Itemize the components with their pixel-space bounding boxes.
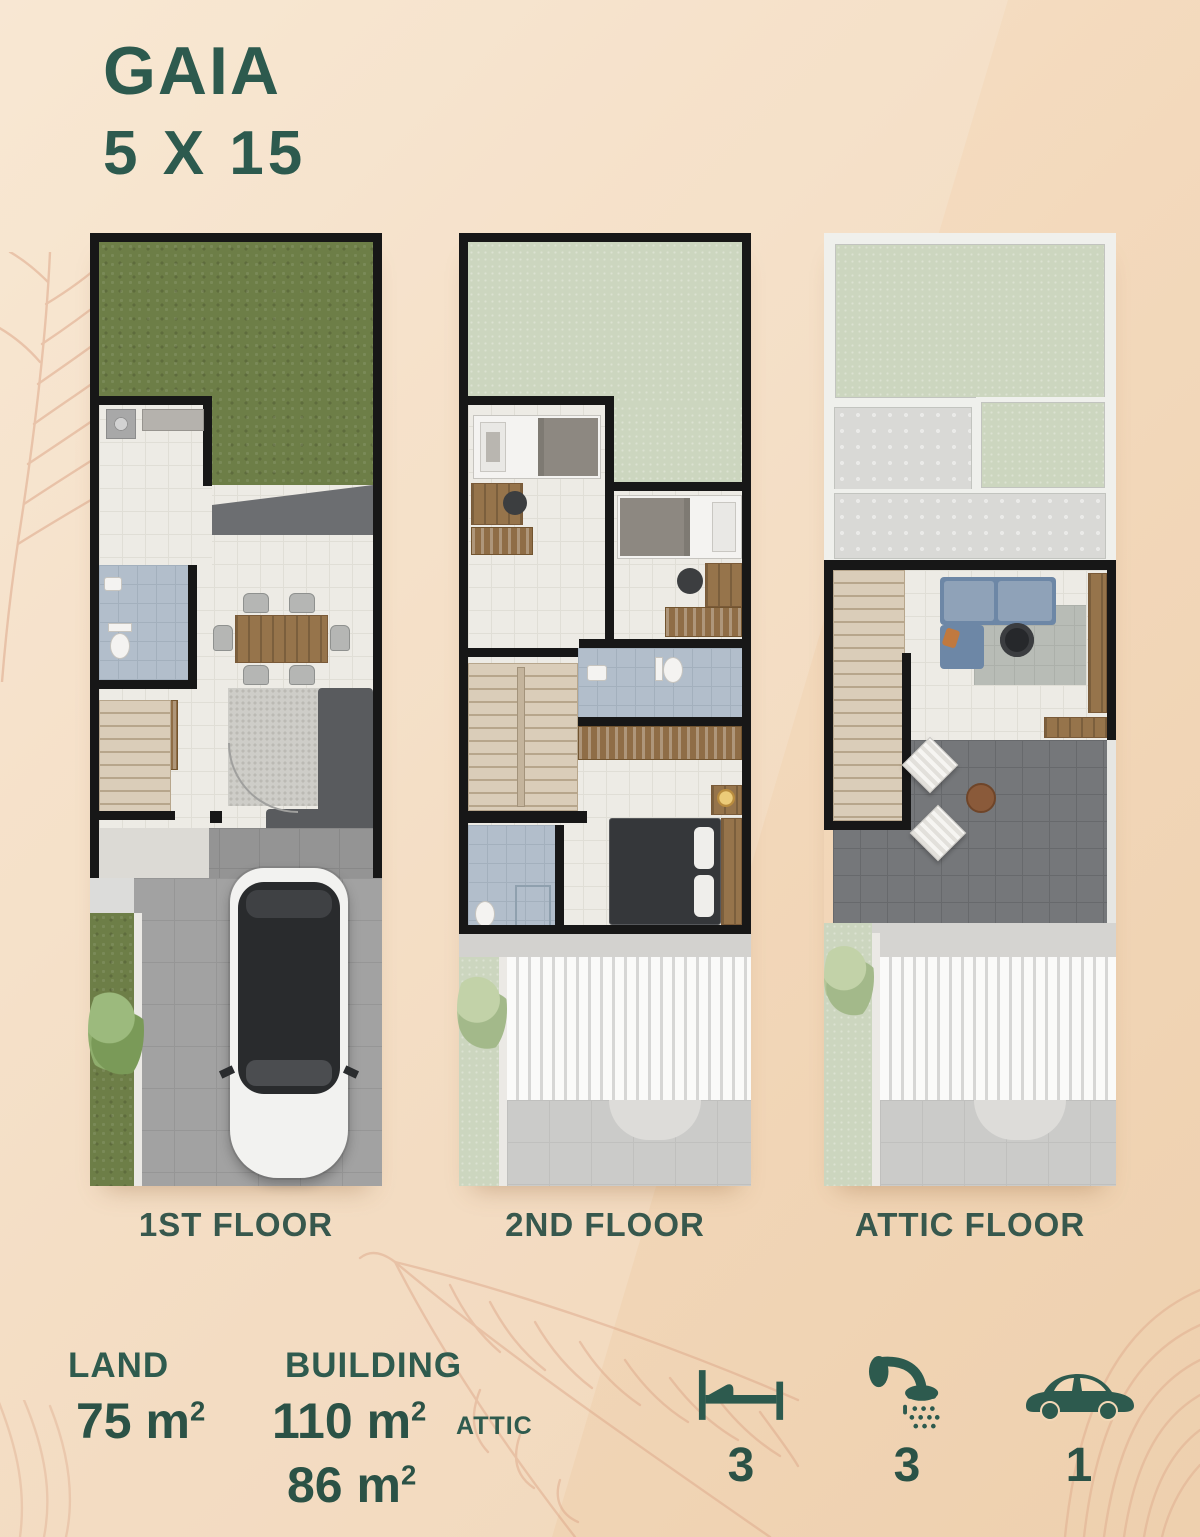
garden-bush: [824, 933, 874, 1021]
blue-sofa: [940, 577, 1056, 625]
dining-chair: [289, 593, 315, 613]
roof-deck-concrete-wide: [830, 489, 1110, 563]
carport-count: 1: [1020, 1438, 1138, 1493]
bedroom2-top-wall: [468, 396, 614, 405]
floor-label-2nd: 2ND FLOOR: [459, 1206, 751, 1244]
page-title: GAIA: [103, 32, 281, 110]
attic-value: 86 m2: [287, 1456, 416, 1514]
building-unit: m: [367, 1393, 411, 1449]
master-headboard: [721, 818, 742, 925]
land-value: 75 m2: [76, 1392, 205, 1450]
bathroom-count: 3: [863, 1438, 951, 1493]
staircase: [99, 700, 171, 815]
floorplan-1st-floor: [90, 233, 382, 1186]
attic-unit: m: [357, 1457, 401, 1513]
stair-wall-bottom: [824, 821, 911, 830]
staircase: [833, 570, 905, 821]
balcony-table: [966, 783, 996, 813]
bed-pillow-inner: [486, 432, 500, 462]
attic-label: ATTIC: [456, 1412, 533, 1441]
stair-railing: [517, 667, 525, 807]
toilet-bowl: [110, 633, 130, 659]
stair-bottom-wall: [468, 811, 587, 823]
service-area-wall-right: [203, 396, 212, 486]
toilet-tank: [655, 657, 663, 681]
bathroom2-sink: [587, 665, 607, 681]
attic-unit-sup: 2: [401, 1459, 416, 1490]
carport-roof: [507, 957, 751, 1100]
washing-machine: [106, 409, 136, 439]
stair-wall: [99, 811, 175, 820]
entry-door-post: [210, 811, 222, 823]
wardrobe: [578, 726, 742, 760]
toilet-bowl: [663, 657, 683, 683]
car-rear-window: [246, 890, 332, 918]
roof-green-panel-column: [976, 397, 1110, 493]
roof-void-green: [468, 242, 742, 405]
side-path: [90, 878, 134, 913]
bathroom-wall-right: [188, 565, 197, 687]
building-number: 110: [272, 1393, 353, 1449]
bedroom3-bed: [617, 495, 742, 559]
building-value: 110 m2: [272, 1392, 426, 1450]
toilet-tank: [108, 623, 132, 632]
dining-chair: [330, 625, 350, 651]
stair-wall-right: [902, 653, 911, 830]
entry-porch: [99, 828, 209, 878]
bed-pillow: [694, 827, 714, 869]
floor-label-1st: 1ST FLOOR: [90, 1206, 382, 1244]
dining-chair: [243, 593, 269, 613]
floor-label-attic: ATTIC FLOOR: [824, 1206, 1116, 1244]
bed-icon: [697, 1368, 785, 1422]
balcony-edge-right: [1107, 740, 1116, 923]
bathroom-sink: [104, 577, 122, 591]
tv-cabinet: [1088, 573, 1107, 713]
attic-top-wall: [824, 560, 1116, 570]
service-area-wall: [99, 396, 212, 405]
dining-chair: [289, 665, 315, 685]
car-icon: [1020, 1366, 1138, 1422]
sofa-cushion: [998, 581, 1052, 621]
coffee-table: [1000, 623, 1034, 657]
bathroom2-bottom-wall: [578, 717, 742, 726]
car-top-view: [230, 868, 348, 1178]
floorplan-attic-floor: [824, 233, 1116, 1186]
floorplan-2nd-floor: [459, 233, 751, 1186]
bedroom-divider-wall: [605, 396, 614, 648]
building-label: BUILDING: [285, 1346, 462, 1386]
bedroom3-chair: [677, 568, 703, 594]
bedroom3-top-wall: [605, 482, 742, 491]
bedroom3-bottom-wall: [579, 639, 742, 648]
attic-left-wall: [824, 560, 833, 830]
roof-green-panel: [830, 239, 1110, 403]
dining-chair: [243, 665, 269, 685]
land-unit: m: [146, 1393, 190, 1449]
balcony-ledge: [459, 934, 751, 957]
car-windshield: [246, 1060, 332, 1086]
sofa-cushion: [944, 581, 994, 621]
bedroom3-dresser: [665, 607, 742, 637]
master-bed: [609, 818, 721, 925]
land-label: LAND: [68, 1346, 169, 1386]
roof-deck-concrete: [830, 403, 976, 495]
service-counter: [142, 409, 204, 431]
building-unit-sup: 2: [411, 1395, 426, 1426]
roof-void-green-column: [605, 405, 742, 491]
bed-pillow: [712, 502, 736, 552]
bed-pillow: [694, 875, 714, 917]
land-number: 75: [76, 1393, 132, 1449]
toilet-bowl: [475, 901, 495, 927]
bedroom2-bed: [473, 415, 601, 479]
bedroom2-chair: [503, 491, 527, 515]
dining-chair: [213, 625, 233, 651]
bathroom3-wall-right: [555, 825, 564, 934]
garden-bush: [88, 978, 144, 1083]
page-subtitle: 5 X 15: [103, 118, 306, 189]
bed-blanket: [620, 498, 690, 556]
garden-bush: [457, 963, 507, 1055]
bathroom-wall-bottom: [99, 680, 197, 689]
page: { "header": { "title": "GAIA", "subtitle…: [0, 0, 1200, 1537]
sideboard: [1044, 717, 1107, 738]
bedroom-count: 3: [697, 1438, 785, 1493]
shower-stall: [515, 885, 551, 927]
table-lamp: [717, 789, 735, 807]
bed-blanket: [538, 418, 598, 476]
dining-table: [235, 615, 328, 663]
bedroom3-desk: [705, 563, 742, 607]
attic-number: 86: [287, 1457, 343, 1513]
attic-right-wall: [1107, 560, 1116, 740]
shower-icon: [868, 1352, 946, 1434]
land-unit-sup: 2: [190, 1395, 205, 1426]
bedroom2-dresser: [471, 527, 533, 555]
master-bottom-wall: [468, 925, 742, 934]
carport-roof: [880, 957, 1116, 1100]
